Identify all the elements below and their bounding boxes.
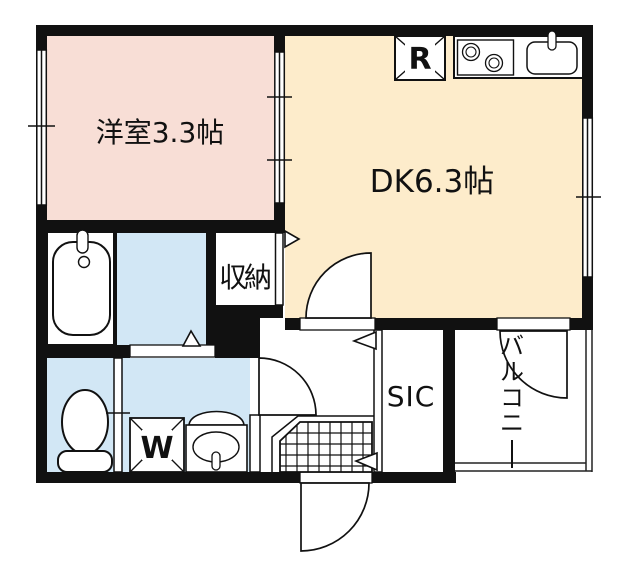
dk-label: DK6.3帖 [370,164,495,200]
wall-bath-washroom-divider [114,232,117,345]
wall-sic-balcony [443,330,455,473]
wall-partition-bottom-cap [274,203,285,233]
floor-plan: R W [0,0,626,573]
bathtub-drain-icon [79,257,90,268]
wall-hall-laundry [250,415,260,472]
toilet-icon [62,390,108,454]
balcony-char-3: コ [500,384,524,412]
sic-label: SIC [387,380,436,413]
threshold-entrance [300,472,372,483]
refrigerator-label: R [408,42,431,77]
wall-dk-bottom-a [285,318,300,330]
wall-dk-bottom-c [570,318,593,330]
stairs-outline [280,422,372,472]
wall-top [36,25,593,36]
kitchen-faucet-icon [548,31,556,50]
closet-label: 収納 [219,261,270,294]
wall-dk-bottom-b [375,318,497,330]
wall-bottom-right [372,472,456,483]
wall-westernroom-bottom [36,220,285,233]
toilet-seat-icon [58,451,112,472]
threshold-washroom [130,345,215,357]
wall-bottom-left [36,472,300,483]
western-room-label: 洋室3.3帖 [96,116,225,149]
washing-machine-label: W [140,431,173,466]
balcony-char-1: バ [500,332,524,360]
bathtub-icon [53,242,110,335]
sic-sliding-door [374,330,382,472]
kitchen: R [395,31,583,80]
floor-plan-canvas: R W [0,0,626,573]
bathtub-faucet-icon [77,230,88,253]
wall-washroom-bottom-right [215,345,260,358]
wall-washroom-closet [206,232,216,345]
bathroom-fixtures [53,230,110,335]
threshold-dk-hall [300,318,375,330]
stairs [272,416,374,473]
door-entrance [301,483,369,551]
balcony-char-2: ル [500,358,524,386]
wall-partition-top-cap [274,25,285,52]
wall-closet-bottom [216,305,283,318]
washroom-floor [116,232,206,345]
wall-bathroom-bottom [36,345,130,358]
washbasin-faucet-icon [212,452,220,470]
threshold-balcony [497,318,570,330]
closet-opening [276,233,284,305]
balcony-char-4: ニ [500,409,524,437]
partition-toilet-laundry [114,358,122,472]
